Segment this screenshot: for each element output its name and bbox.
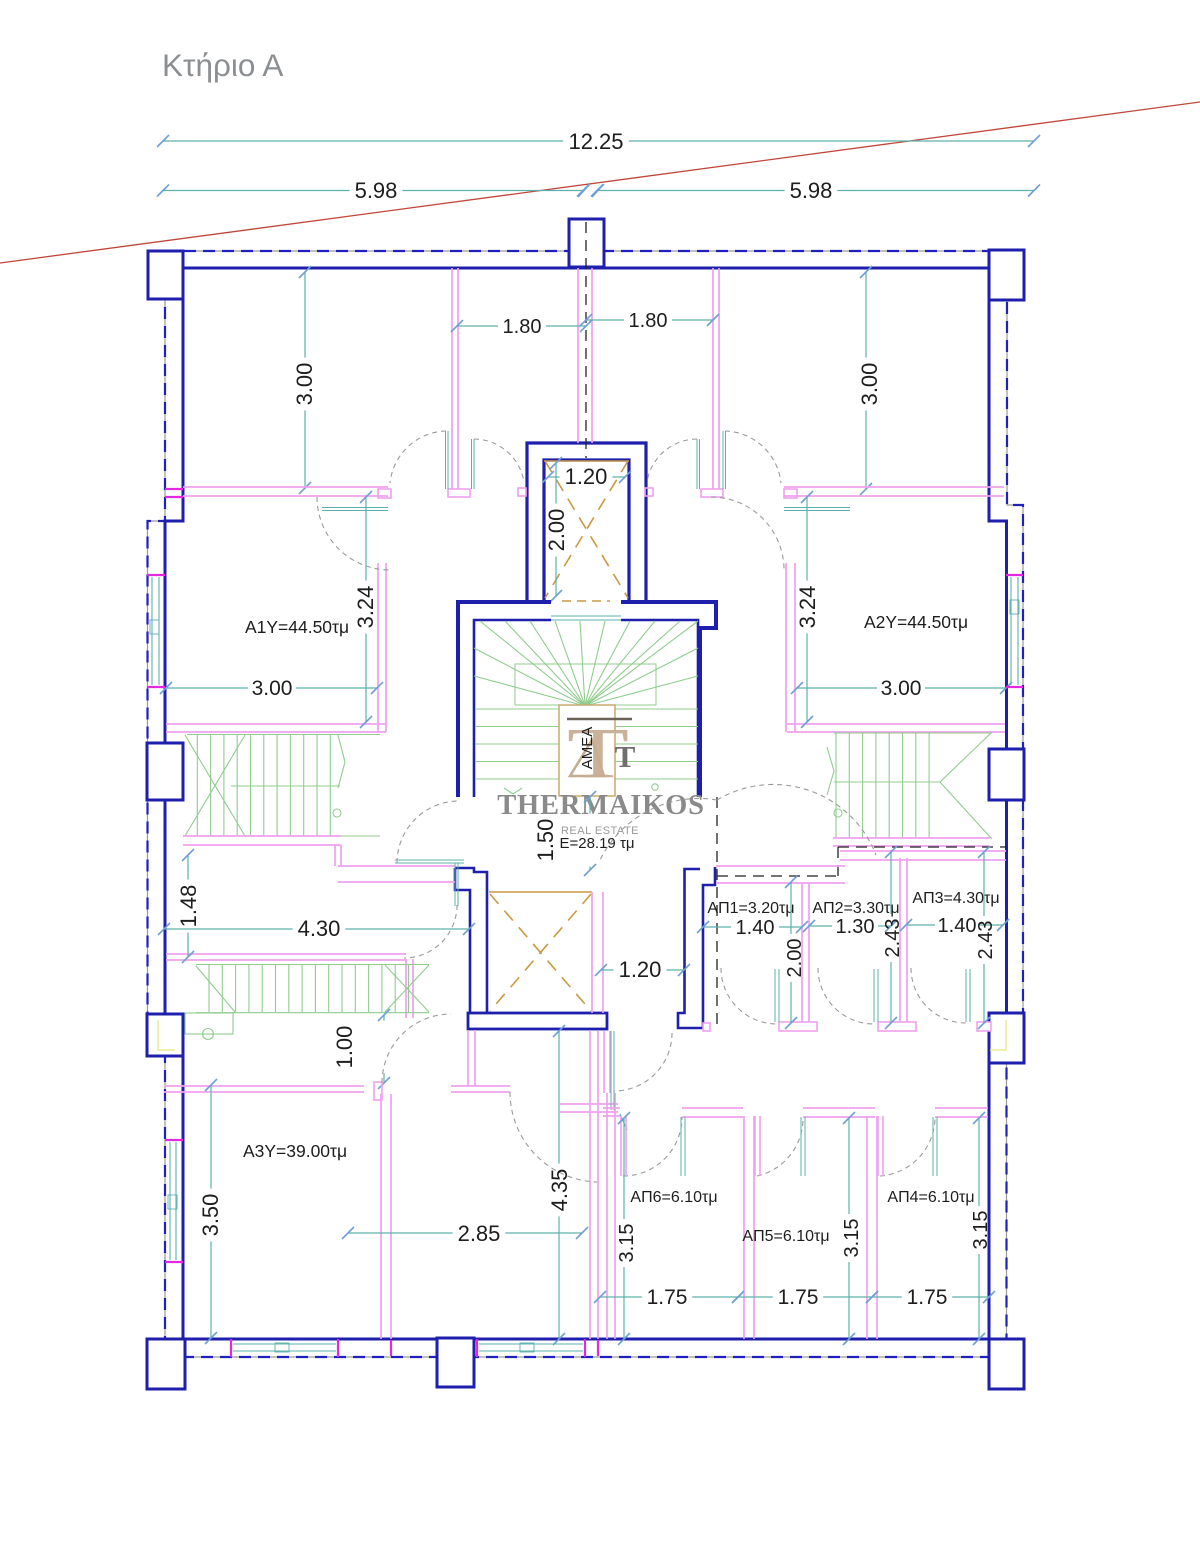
svg-text:1.20: 1.20 bbox=[619, 957, 662, 982]
svg-text:1.80: 1.80 bbox=[629, 310, 668, 332]
svg-text:2.43: 2.43 bbox=[882, 919, 904, 958]
svg-text:3.50: 3.50 bbox=[198, 1194, 223, 1237]
svg-text:3.15: 3.15 bbox=[841, 1219, 863, 1258]
svg-text:2.00: 2.00 bbox=[784, 939, 806, 978]
svg-text:3.24: 3.24 bbox=[353, 586, 378, 629]
svg-text:3.00: 3.00 bbox=[252, 677, 293, 700]
svg-text:ΑΠ1=3.20τμ: ΑΠ1=3.20τμ bbox=[707, 900, 794, 917]
svg-text:1.30: 1.30 bbox=[836, 916, 875, 938]
svg-text:1.80: 1.80 bbox=[503, 316, 542, 338]
svg-text:4.35: 4.35 bbox=[547, 1169, 572, 1212]
svg-text:ΑΠ2=3.30τμ: ΑΠ2=3.30τμ bbox=[812, 900, 899, 917]
svg-text:ΑΠ4=6.10τμ: ΑΠ4=6.10τμ bbox=[887, 1189, 974, 1206]
svg-text:ΑΠ5=6.10τμ: ΑΠ5=6.10τμ bbox=[742, 1228, 829, 1245]
svg-text:1.48: 1.48 bbox=[176, 885, 201, 928]
svg-text:4.30: 4.30 bbox=[298, 916, 341, 941]
svg-text:THERMAIKOS: THERMAIKOS bbox=[497, 790, 705, 821]
svg-text:Κτήριο Α: Κτήριο Α bbox=[162, 47, 283, 83]
svg-text:3.00: 3.00 bbox=[292, 363, 317, 406]
svg-text:Ε=28.19 τμ: Ε=28.19 τμ bbox=[559, 835, 634, 852]
svg-text:1.75: 1.75 bbox=[647, 1286, 688, 1309]
svg-text:1.40: 1.40 bbox=[736, 917, 775, 939]
svg-text:1.75: 1.75 bbox=[907, 1286, 948, 1309]
svg-text:5.98: 5.98 bbox=[355, 178, 398, 203]
svg-text:AMEA: AMEA bbox=[579, 727, 596, 770]
svg-text:3.15: 3.15 bbox=[970, 1211, 992, 1250]
svg-text:3.00: 3.00 bbox=[857, 363, 882, 406]
svg-text:A1Y=44.50τμ: A1Y=44.50τμ bbox=[245, 617, 349, 637]
svg-text:2.00: 2.00 bbox=[544, 509, 569, 552]
svg-text:ΑΠ3=4.30τμ: ΑΠ3=4.30τμ bbox=[912, 890, 999, 907]
svg-text:3.15: 3.15 bbox=[616, 1224, 638, 1263]
svg-text:1.50: 1.50 bbox=[533, 819, 558, 862]
svg-text:3.24: 3.24 bbox=[795, 586, 820, 629]
svg-text:12.25: 12.25 bbox=[568, 129, 623, 154]
svg-text:2.85: 2.85 bbox=[458, 1221, 501, 1246]
svg-text:1.00: 1.00 bbox=[332, 1026, 357, 1069]
svg-text:1.40: 1.40 bbox=[938, 915, 977, 937]
svg-text:1.20: 1.20 bbox=[565, 464, 608, 489]
svg-text:5.98: 5.98 bbox=[790, 178, 833, 203]
svg-text:A3Y=39.00τμ: A3Y=39.00τμ bbox=[243, 1141, 347, 1161]
svg-text:2.43: 2.43 bbox=[975, 921, 997, 960]
svg-text:ΑΠ6=6.10τμ: ΑΠ6=6.10τμ bbox=[630, 1189, 717, 1206]
svg-text:1.75: 1.75 bbox=[778, 1286, 819, 1309]
svg-text:T: T bbox=[615, 739, 636, 774]
svg-text:A2Y=44.50τμ: A2Y=44.50τμ bbox=[864, 612, 968, 632]
svg-text:3.00: 3.00 bbox=[881, 677, 922, 700]
